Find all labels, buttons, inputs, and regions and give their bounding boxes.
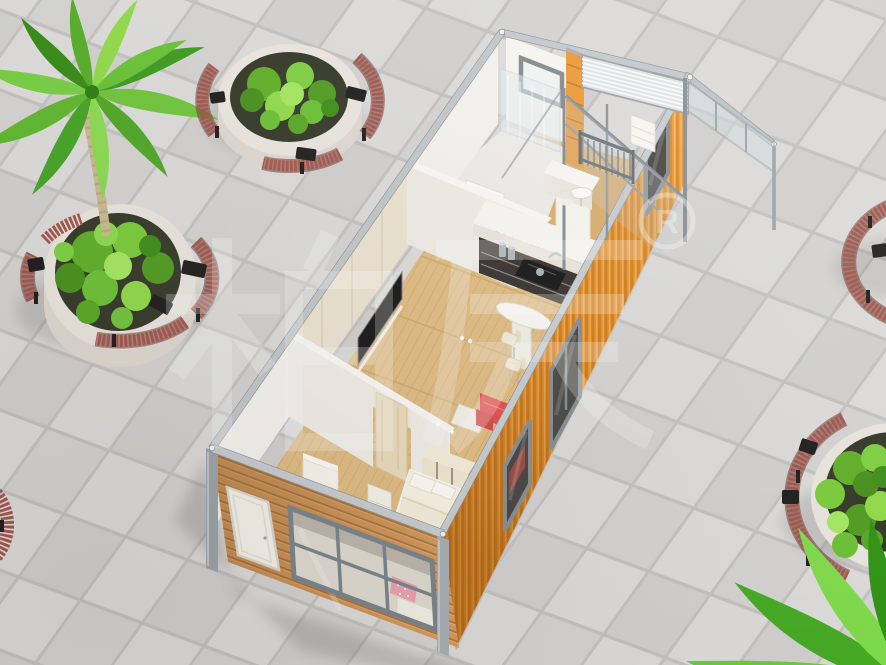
render-scene: R bbox=[0, 0, 886, 665]
screenshot-root: R bbox=[0, 0, 886, 665]
shade-overlay bbox=[0, 0, 886, 665]
